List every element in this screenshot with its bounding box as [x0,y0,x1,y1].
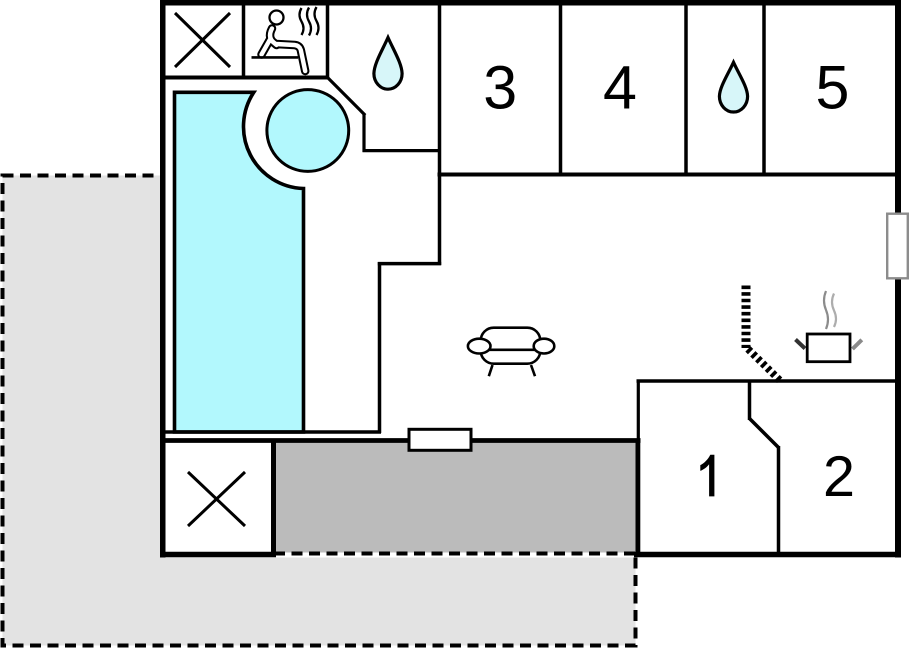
svg-text:5: 5 [816,54,850,122]
svg-text:2: 2 [823,445,855,509]
svg-text:4: 4 [603,54,637,122]
svg-text:3: 3 [483,54,517,122]
